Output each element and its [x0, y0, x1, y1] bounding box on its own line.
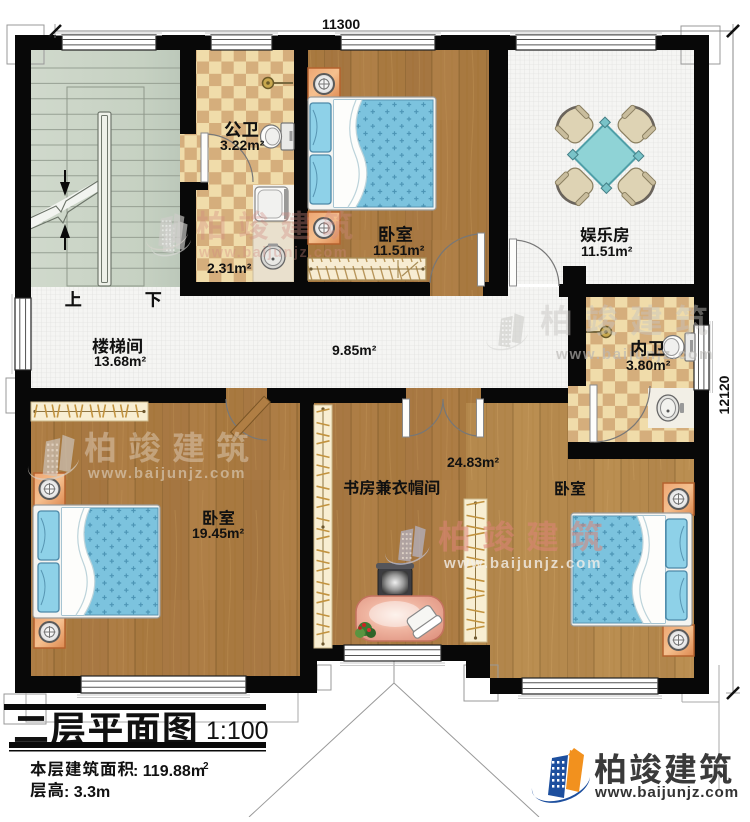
svg-text:2: 2 — [203, 761, 209, 772]
svg-text:www.baijunjz.com: www.baijunjz.com — [87, 465, 246, 482]
svg-text:11300: 11300 — [322, 16, 360, 32]
svg-text:11.51m²: 11.51m² — [581, 243, 633, 259]
svg-text:: 3.3m: : 3.3m — [64, 784, 110, 801]
svg-text:www.baijunjz.com: www.baijunjz.com — [443, 555, 602, 572]
svg-text:24.83m²: 24.83m² — [447, 454, 499, 470]
svg-text:www.baijunjz.com: www.baijunjz.com — [198, 245, 348, 261]
svg-text:3.80m²: 3.80m² — [626, 357, 671, 373]
svg-text:12120: 12120 — [716, 375, 732, 414]
svg-text:3.22m²: 3.22m² — [220, 137, 265, 153]
svg-text:: 119.88m: : 119.88m — [133, 763, 205, 780]
svg-text:11.51m²: 11.51m² — [373, 242, 425, 258]
svg-text:19.45m²: 19.45m² — [192, 525, 244, 541]
svg-text:2.31m²: 2.31m² — [207, 260, 252, 276]
svg-text:9.85m²: 9.85m² — [332, 342, 377, 358]
svg-text:1:100: 1:100 — [206, 717, 269, 745]
svg-text:13.68m²: 13.68m² — [94, 353, 146, 369]
svg-text:www.baijunjz.com: www.baijunjz.com — [594, 784, 739, 801]
